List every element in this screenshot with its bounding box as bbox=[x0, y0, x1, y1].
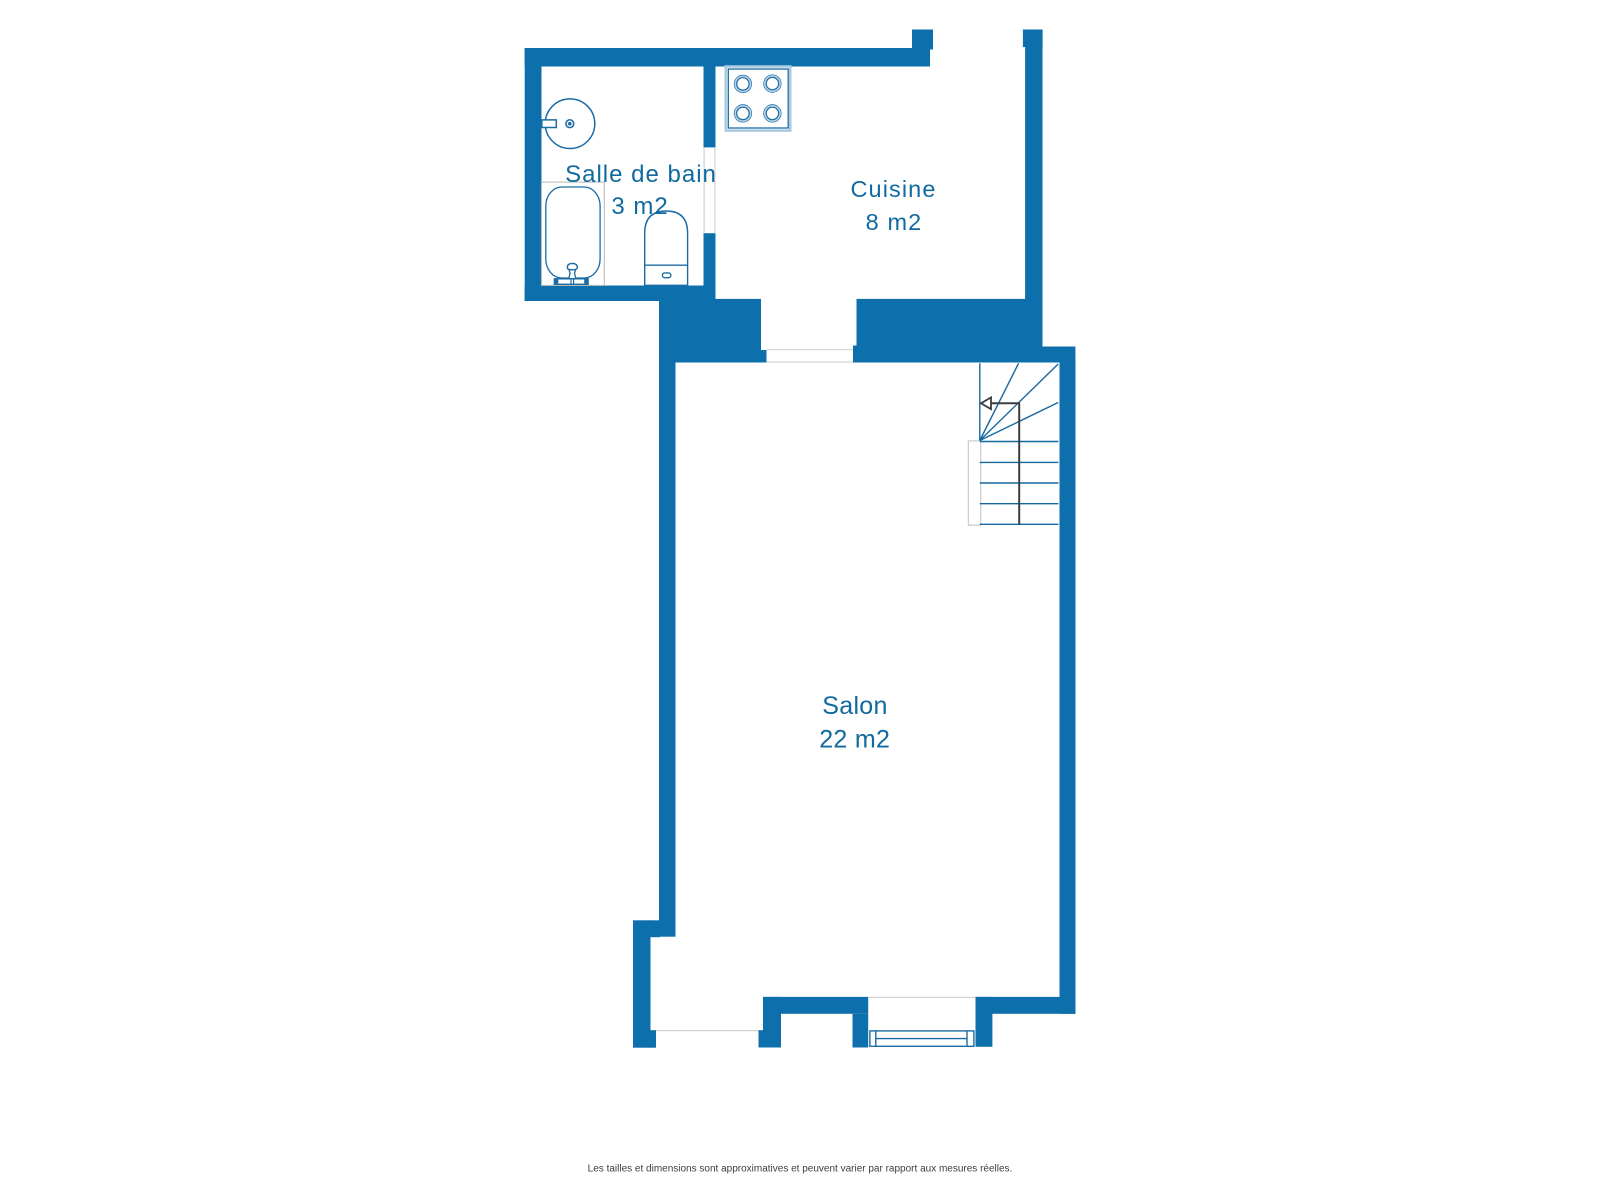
svg-text:3 m2: 3 m2 bbox=[611, 193, 668, 220]
svg-text:Salle de bain: Salle de bain bbox=[565, 161, 717, 188]
svg-text:Les tailles et dimensions sont: Les tailles et dimensions sont approxima… bbox=[588, 1164, 1013, 1175]
svg-text:22 m2: 22 m2 bbox=[819, 725, 890, 753]
svg-text:Salon: Salon bbox=[822, 692, 887, 720]
svg-text:8 m2: 8 m2 bbox=[866, 209, 923, 235]
svg-text:Cuisine: Cuisine bbox=[850, 176, 936, 202]
